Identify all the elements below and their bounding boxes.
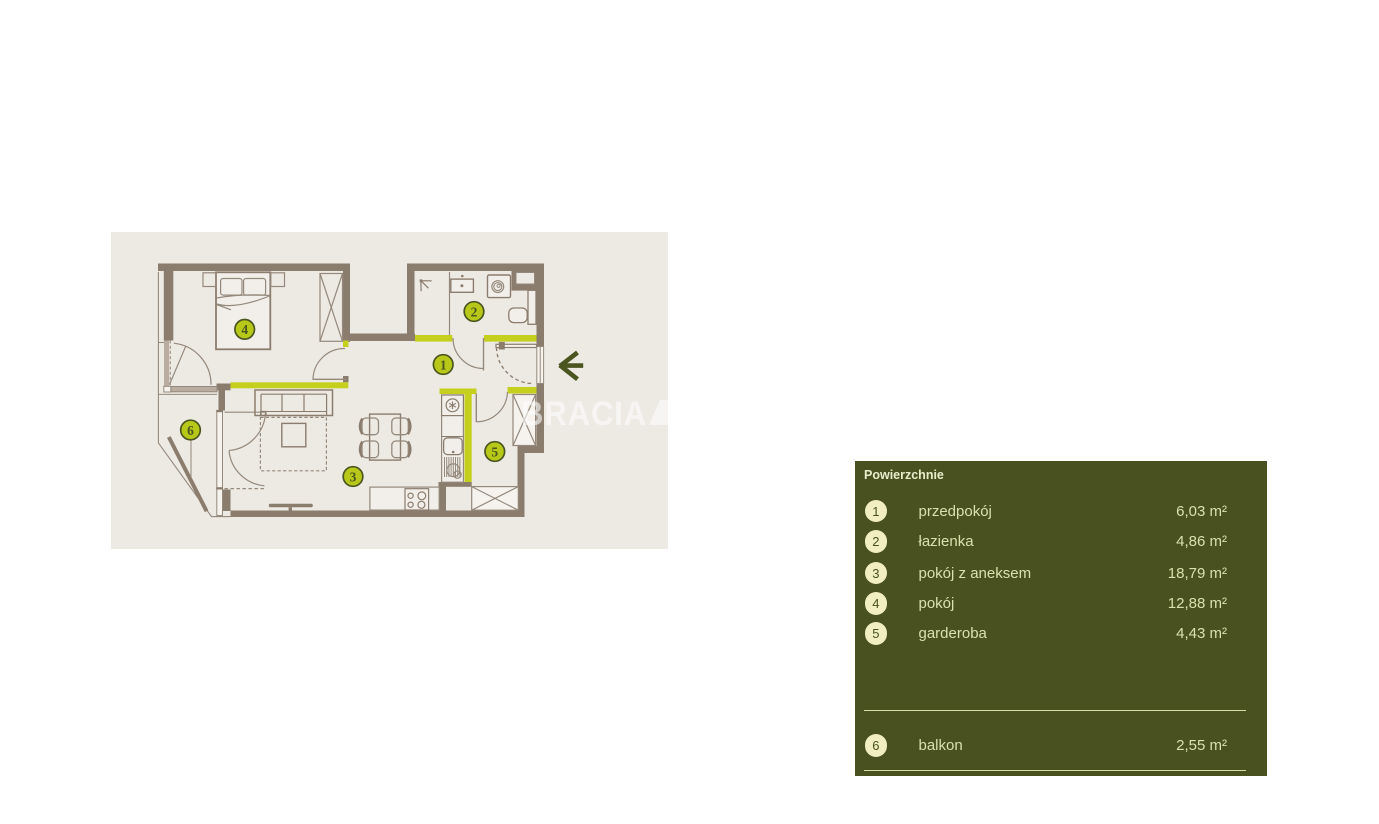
svg-text:2: 2 — [471, 304, 478, 319]
svg-text:3: 3 — [350, 469, 357, 484]
svg-text:4: 4 — [241, 322, 248, 337]
svg-text:6: 6 — [187, 423, 194, 438]
svg-text:1: 1 — [440, 357, 447, 372]
svg-text:5: 5 — [491, 444, 498, 459]
svg-text:BRACIA: BRACIA — [521, 393, 647, 432]
